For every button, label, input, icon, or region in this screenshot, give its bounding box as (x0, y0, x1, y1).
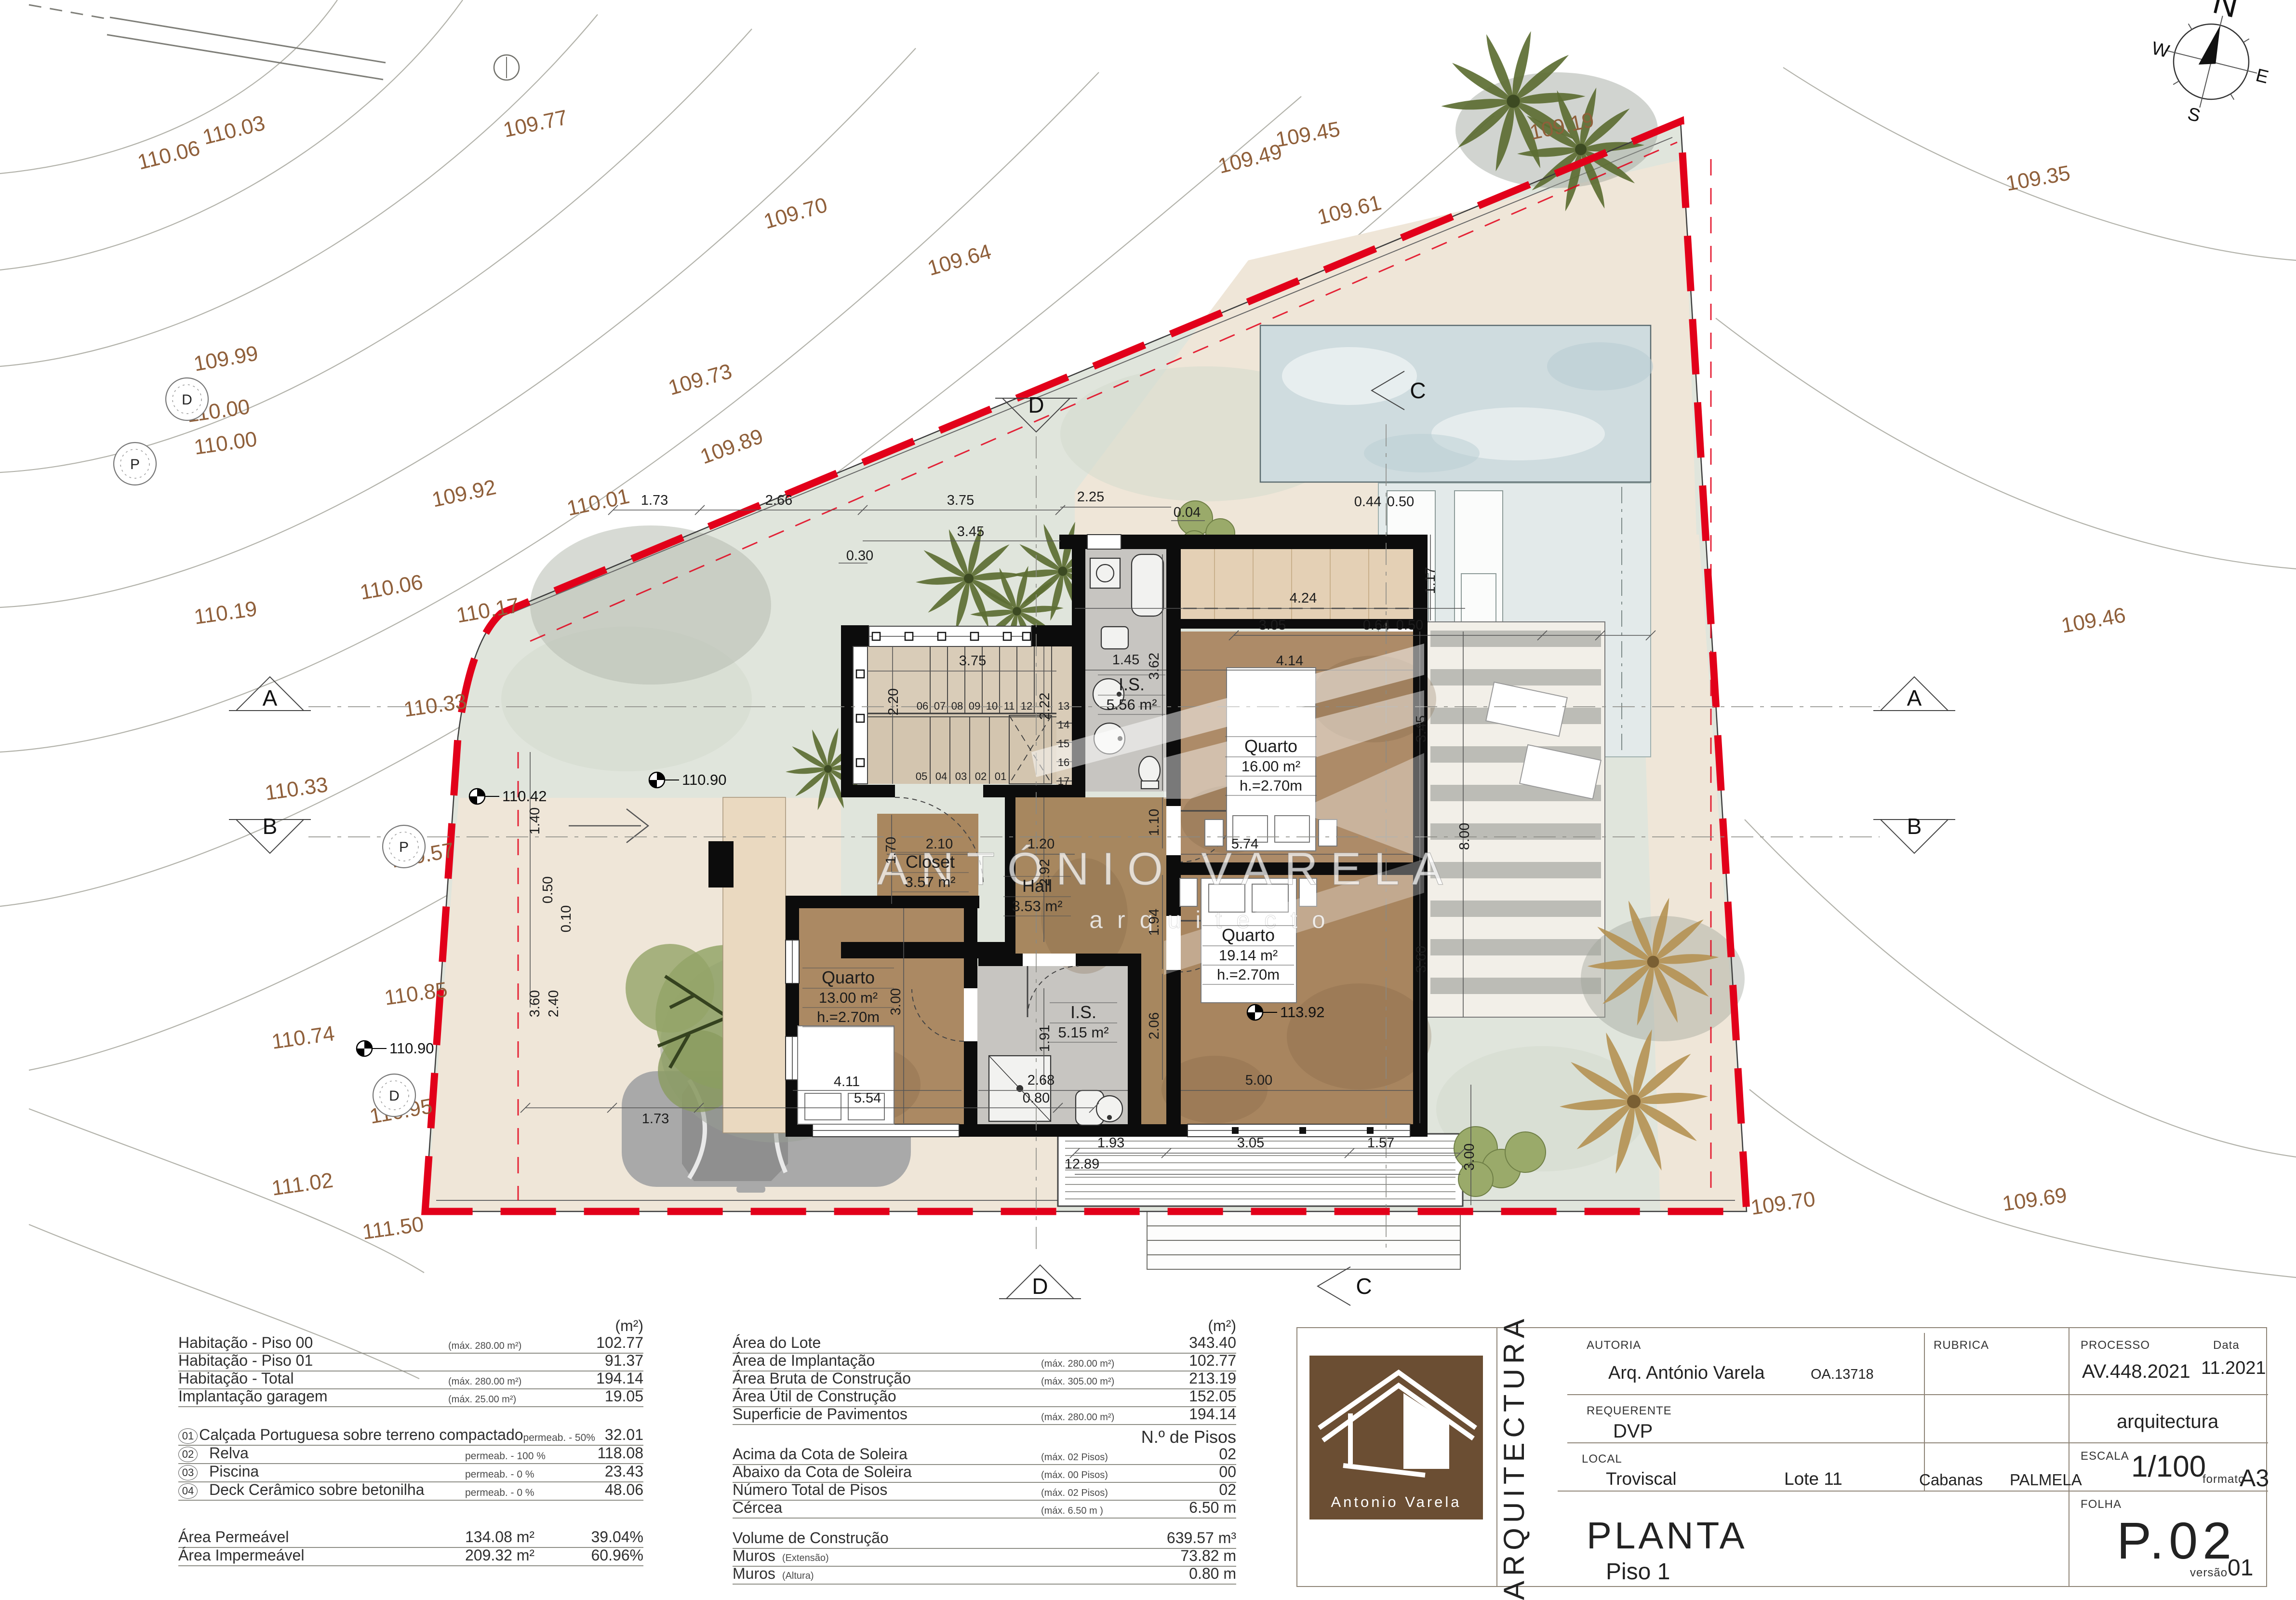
material-permeability: permeab. - 0 % (465, 1487, 586, 1499)
contour-elevation-label: 111.02 (270, 1169, 335, 1200)
areas-table-lote: (m²) Área do Lote343.40Área de Implantaç… (733, 1318, 1236, 1585)
spot-level-symbol (1247, 1005, 1263, 1020)
compass-needle (2199, 23, 2225, 69)
contour-elevation-label: 109.77 (501, 106, 570, 142)
folha-value: P.02 (2117, 1510, 2236, 1571)
pool (1260, 325, 1653, 482)
row-max: (máx. 305.00 m²) (1041, 1376, 1178, 1387)
dimension-label: 3.62 (1147, 653, 1162, 680)
row-value: 91.37 (586, 1352, 643, 1370)
spot-level-value: 110.90 (682, 771, 727, 788)
row-value: 639.57 m³ (1111, 1529, 1236, 1547)
dimension-label: 1.20 (1028, 836, 1055, 852)
dimension-label: 3.45 (957, 524, 984, 539)
row-label: Abaixo da Cota de Soleira (733, 1463, 1041, 1481)
stair-number: 09 (969, 700, 980, 712)
rubrica-label: RUBRICA (1934, 1339, 1989, 1352)
logo-house-icon (1309, 1356, 1483, 1481)
autoria-label: AUTORIA (1587, 1339, 1641, 1352)
versao-value: 01 (2228, 1555, 2253, 1581)
dimension-label: 1.73 (642, 1111, 669, 1127)
dimension-label: 1.91 (1037, 1025, 1053, 1052)
room-label: Closet (906, 852, 955, 872)
contour-elevation-label: 109.64 (925, 240, 994, 280)
dimension-label: 3.75 (959, 653, 986, 669)
contour-elevation-label: 109.61 (1315, 191, 1384, 229)
contour-elevation-label: 109.89 (697, 424, 766, 469)
drawing-sheet: { "colors":{"boundary_red":"#e2001a","co… (0, 0, 2296, 1597)
table-row: Habitação - Piso 0191.37 (178, 1354, 643, 1371)
contour-elevation-label: 110.33 (264, 773, 330, 805)
stair-number: 15 (1058, 738, 1069, 750)
dimension-label: 2.66 (765, 493, 792, 508)
section-marker-d: D (999, 1265, 1081, 1299)
room-label: 3.57 m² (905, 874, 955, 890)
entry-steps (1147, 1211, 1460, 1269)
row-value: 102.77 (1178, 1352, 1236, 1370)
dimension-label: 3.05 (1259, 618, 1286, 633)
contour-elevation-label: 110.00 (193, 427, 259, 459)
spot-level-value: 110.42 (502, 788, 547, 805)
survey-points: PDPD (114, 378, 425, 1116)
contour-elevation-label: 109.70 (761, 193, 830, 233)
total-row: Área Impermeável209.32 m²60.96% (178, 1548, 643, 1566)
processo-value: AV.448.2021 (2082, 1361, 2190, 1383)
section-marker-b: B (1873, 814, 1955, 853)
table-row: Habitação - Piso 00(máx. 280.00 m²)102.7… (178, 1336, 643, 1354)
row-label: Muros(Altura) (733, 1565, 1111, 1583)
section-marker-c: C (1318, 1267, 1372, 1305)
drawing-title: PLANTA (1587, 1514, 1748, 1558)
room-label: Quarto (1222, 925, 1275, 945)
contour-elevation-label: 110.03 (200, 111, 267, 149)
spot-level-symbol (649, 772, 665, 788)
stair-number: 14 (1058, 719, 1069, 731)
row-max: (máx. 00 Pisos) (1041, 1470, 1178, 1481)
material-row: 02Relvapermeab. - 100 %118.08 (178, 1446, 643, 1464)
room-label: I.S. (1119, 674, 1145, 694)
svg-text:B: B (263, 814, 278, 839)
room-label: 5.56 m² (1106, 696, 1157, 713)
dimension-label: 1.57 (1367, 1135, 1394, 1151)
pisos-header: N.º de Pisos (1141, 1427, 1236, 1447)
row-label: Área Útil de Construção (733, 1387, 1041, 1405)
table-row: Área de Implantação(máx. 280.00 m²)102.7… (733, 1354, 1236, 1371)
local-label: LOCAL (1582, 1452, 1622, 1466)
table-row: Superficie de Pavimentos(máx. 280.00 m²)… (733, 1407, 1236, 1425)
room-label: I.S. (1070, 1002, 1096, 1022)
dimension-label: 3.45 (1414, 715, 1429, 742)
row-label: Cércea (733, 1499, 1041, 1517)
spot-level-symbol (469, 789, 485, 804)
svg-text:A: A (1907, 686, 1922, 711)
dimension-label: 0.64 (1363, 618, 1390, 633)
pisos-row: Abaixo da Cota de Soleira(máx. 00 Pisos)… (733, 1465, 1236, 1483)
table-row: Área do Lote343.40 (733, 1336, 1236, 1354)
dimension-label: 4.24 (1290, 591, 1317, 606)
stair-number: 03 (955, 770, 967, 782)
table-row: Habitação - Total(máx. 280.00 m²)194.14 (178, 1371, 643, 1389)
stair-number: 07 (934, 700, 946, 712)
dimension-label: 0.80 (1023, 1090, 1050, 1106)
table-row: Implantação garagem(máx. 25.00 m²)19.05 (178, 1389, 643, 1407)
pergola-slat (1430, 978, 1601, 994)
svg-text:C: C (1410, 378, 1426, 403)
contour-elevation-label: 109.45 (1274, 117, 1342, 152)
material-value: 48.06 (586, 1481, 643, 1499)
dimension-label: 0.30 (846, 548, 873, 564)
total-label: Área Impermeável (178, 1546, 451, 1564)
total-label: Área Permeável (178, 1528, 451, 1546)
dimension-label: 0.50 (540, 876, 556, 903)
row-value: 02 (1178, 1481, 1236, 1499)
compass-west-label: W (2149, 38, 2171, 62)
row-value: 19.05 (586, 1387, 643, 1405)
material-value: 118.08 (586, 1444, 643, 1462)
row-value: 02 (1178, 1445, 1236, 1463)
table-row: Área Bruta de Construção(máx. 305.00 m²)… (733, 1371, 1236, 1389)
dimension-label: 2.20 (886, 688, 901, 715)
row-value: 0.80 m (1111, 1565, 1236, 1583)
material-label: Relva (209, 1444, 465, 1462)
contour-elevation-label: 110.01 (565, 484, 632, 521)
compass-north-label: N (2209, 0, 2242, 25)
dimension-label: 1.70 (883, 837, 899, 864)
versao-label: versão (2190, 1566, 2228, 1580)
dimension-label: 3.75 (947, 493, 974, 508)
survey-letter: P (399, 839, 409, 855)
autoria-number: OA.13718 (1811, 1367, 1874, 1383)
spot-level-value: 110.90 (389, 1040, 434, 1057)
row-value: 213.19 (1178, 1370, 1236, 1387)
road-lines (29, 5, 386, 80)
dimension-label: 1.94 (1147, 909, 1162, 936)
contour-elevation-label: 110.74 (270, 1022, 336, 1054)
dimension-label: 4.14 (1276, 653, 1303, 669)
room-label: 16.00 m² (1241, 758, 1300, 775)
discipline-vertical-label: ARQUITECTURA (1498, 1314, 1531, 1600)
dimension-label: 12.89 (1065, 1156, 1100, 1172)
material-permeability: permeab. - 50% (523, 1432, 605, 1444)
escala-value: 1/100 (2131, 1450, 2206, 1484)
room-label: h.=2.70m (817, 1008, 880, 1025)
contour-elevation-label: 109.69 (2001, 1183, 2069, 1216)
row-value: 343.40 (1178, 1334, 1236, 1352)
pisos-row: Acima da Cota de Soleira(máx. 02 Pisos)0… (733, 1447, 1236, 1465)
folha-label: FOLHA (2081, 1498, 2122, 1511)
total-value: 134.08 m² (451, 1528, 576, 1546)
dimension-label: 3.00 (1462, 1143, 1477, 1170)
material-number: 02 (178, 1447, 209, 1462)
processo-label: PROCESSO (2081, 1339, 2150, 1352)
row-max: (máx. 25.00 m²) (448, 1394, 586, 1405)
dimension-label: 1.40 (527, 807, 543, 834)
local-value-1: Troviscal (1606, 1469, 1677, 1489)
stair-number: 04 (935, 770, 947, 782)
svg-text:B: B (1907, 814, 1922, 839)
row-value: 73.82 m (1111, 1547, 1236, 1565)
row-label: Área do Lote (733, 1334, 1041, 1352)
row-label: Acima da Cota de Soleira (733, 1445, 1041, 1463)
dimension-label: 2.40 (546, 990, 561, 1017)
material-value: 23.43 (586, 1463, 643, 1480)
escala-label: ESCALA (2081, 1450, 2129, 1463)
material-row: 03Piscinapermeab. - 0 %23.43 (178, 1464, 643, 1482)
slat-deck (1427, 622, 1605, 1017)
svg-text:D: D (1032, 1274, 1048, 1299)
spot-level-value: 113.92 (1280, 1004, 1325, 1021)
dimension-label: 3.60 (527, 990, 543, 1017)
contour-elevation-label: 110.06 (135, 136, 202, 174)
dimension-label: 4.11 (834, 1074, 860, 1089)
pergola-slat (1430, 862, 1601, 878)
stair-number: 02 (975, 770, 987, 782)
material-permeability: permeab. - 0 % (465, 1469, 586, 1480)
pisos-row: Cércea(máx. 6.50 m )6.50 m (733, 1501, 1236, 1519)
pergola-slat (1430, 901, 1601, 917)
extra-row: Muros(Altura)0.80 m (733, 1567, 1236, 1585)
row-max: (máx. 02 Pisos) (1041, 1488, 1178, 1499)
dimension-label: 0.50 (1387, 494, 1414, 510)
extra-row: Volume de Construção639.57 m³ (733, 1531, 1236, 1549)
row-max: (máx. 280.00 m²) (448, 1376, 586, 1387)
room-label: Quarto (1244, 736, 1297, 756)
room-label: 3.53 m² (1012, 898, 1062, 914)
dimension-label: 0.50 (1396, 618, 1423, 633)
logo-name: Antonio Varela (1309, 1493, 1483, 1511)
contour-elevation-label: 109.70 (1749, 1187, 1817, 1220)
unit-header: (m²) (1208, 1317, 1236, 1335)
row-max: (máx. 280.00 m²) (1041, 1412, 1178, 1423)
data-label: Data (2213, 1339, 2240, 1352)
material-row: 01Calçada Portuguesa sobre terreno compa… (178, 1427, 643, 1446)
row-label: Área Bruta de Construção (733, 1370, 1041, 1387)
row-max: (máx. 6.50 m ) (1041, 1506, 1178, 1517)
material-value: 32.01 (604, 1426, 643, 1444)
survey-letter: D (182, 392, 192, 408)
contour-elevation-label: 109.73 (666, 359, 734, 400)
dimension-label: 8.00 (1457, 823, 1472, 850)
stair-number: 06 (917, 700, 928, 712)
total-row: Área Permeável134.08 m²39.04% (178, 1530, 643, 1548)
svg-text:A: A (263, 686, 278, 711)
dimension-label: 1.93 (1097, 1135, 1124, 1151)
contour-elevation-label: 109.35 (2004, 161, 2072, 196)
dimension-label: 2.25 (1077, 489, 1104, 505)
contour-elevation-label: 109.92 (430, 475, 498, 512)
material-number: 03 (178, 1465, 209, 1480)
requerente-label: REQUERENTE (1587, 1404, 1672, 1418)
stair-number: 08 (951, 700, 963, 712)
unit-header: (m²) (615, 1317, 643, 1335)
stair-number: 11 (1004, 700, 1015, 712)
row-value: 00 (1178, 1463, 1236, 1481)
section-marker-a: A (1873, 677, 1955, 711)
dimension-label: 5.74 (1231, 836, 1258, 852)
pisos-row: Número Total de Pisos(máx. 02 Pisos)02 (733, 1483, 1236, 1501)
row-value: 194.14 (1178, 1405, 1236, 1423)
row-value: 194.14 (586, 1370, 643, 1387)
room-label: Hall (1022, 876, 1052, 896)
local-value-4: PALMELA (2010, 1471, 2082, 1489)
material-label: Deck Cerâmico sobre betonilha (209, 1481, 465, 1499)
dimension-label: 3.05 (1237, 1135, 1264, 1151)
stair-number: 17 (1058, 775, 1069, 787)
row-label: Volume de Construção (733, 1529, 1111, 1547)
row-label: Muros(Extensão) (733, 1547, 1111, 1565)
contour-elevation-label: 109.46 (2059, 603, 2127, 638)
material-number: 04 (178, 1483, 209, 1499)
contour-elevation-label: 109.49 (1216, 140, 1284, 178)
formato-label: formato (2203, 1473, 2245, 1486)
extra-row: Muros(Extensão)73.82 m (733, 1549, 1236, 1567)
section-marker-b: B (229, 814, 311, 853)
svg-text:C: C (1356, 1274, 1372, 1299)
contour-elevation-label: 110.06 (358, 570, 425, 605)
total-percent: 60.96% (576, 1546, 643, 1564)
room-label: Quarto (822, 968, 875, 987)
contour-elevation-label: 110.19 (193, 597, 259, 629)
contour-elevation-label: 111.50 (361, 1212, 426, 1244)
dimension-label: 2.10 (926, 836, 953, 852)
dimension-label: 2.06 (1147, 1012, 1162, 1039)
room-label: 13.00 m² (819, 989, 878, 1006)
watermark-name: ANTÓNIO VARELA (877, 843, 1455, 895)
pergola-slat (1430, 669, 1601, 686)
row-label: Número Total de Pisos (733, 1481, 1041, 1499)
dimension-label: 1.45 (1112, 652, 1139, 668)
dimension-label: 1.73 (641, 493, 668, 508)
stair-number: 13 (1058, 700, 1069, 712)
dimension-label: 5.54 (854, 1090, 881, 1106)
row-label: Habitação - Total (178, 1370, 448, 1387)
specialty-value: arquitectura (2117, 1411, 2218, 1433)
compass-south-label: S (2186, 104, 2203, 126)
formato-value: A3 (2240, 1464, 2269, 1492)
dimension-label: 3.00 (888, 988, 904, 1015)
watermark-role: arquitecto (1089, 906, 1340, 933)
architect-logo: Antonio Varela (1309, 1356, 1483, 1519)
areas-table-habitacao: (m²) Habitação - Piso 00(máx. 280.00 m²)… (178, 1318, 643, 1566)
row-value: 152.05 (1178, 1387, 1236, 1405)
dimension-label: 2.68 (1028, 1073, 1055, 1088)
table-row: Área Útil de Construção152.05 (733, 1389, 1236, 1407)
survey-letter: D (389, 1088, 400, 1104)
row-label: Superficie de Pavimentos (733, 1405, 1041, 1423)
material-permeability: permeab. - 100 % (465, 1451, 586, 1462)
data-value: 11.2021 (2201, 1358, 2266, 1379)
dimension-label: 0.10 (559, 905, 574, 932)
room-label: 19.14 m² (1219, 947, 1278, 964)
spot-level-symbol (357, 1041, 372, 1056)
section-marker-a: A (229, 677, 311, 711)
dimension-label: 1.10 (1147, 809, 1162, 836)
contour-elevation-label: 109.99 (192, 341, 260, 376)
autoria-value: Arq. António Varela (1608, 1363, 1765, 1384)
material-label: Piscina (209, 1463, 465, 1480)
row-value: 102.77 (586, 1334, 643, 1352)
dimension-label: 1.17 (1423, 567, 1438, 594)
drawing-subtitle: Piso 1 (1606, 1559, 1670, 1585)
compass-east-label: E (2254, 65, 2270, 88)
total-percent: 39.04% (576, 1528, 643, 1546)
material-label: Calçada Portuguesa sobre terreno compact… (199, 1426, 523, 1444)
dimension-label: 0.04 (1174, 505, 1201, 520)
row-value: 6.50 m (1178, 1499, 1236, 1517)
pergola-slat (1430, 939, 1601, 955)
contour-elevation-label: 110.33 (402, 689, 468, 722)
row-max: (máx. 280.00 m²) (448, 1341, 586, 1352)
room-label: h.=2.70m (1217, 966, 1280, 983)
stair-number: 12 (1021, 700, 1032, 712)
stair-number: 16 (1058, 756, 1069, 768)
svg-text:D: D (1028, 392, 1044, 417)
row-label: Área de Implantação (733, 1352, 1041, 1370)
local-value-2: Lote 11 (1784, 1469, 1842, 1489)
material-number: 01 (178, 1428, 199, 1444)
material-row: 04Deck Cerâmico sobre betonilhapermeab. … (178, 1482, 643, 1501)
pergola-slat (1430, 631, 1601, 647)
row-label: Implantação garagem (178, 1387, 448, 1405)
total-value: 209.32 m² (451, 1546, 576, 1564)
title-block: Antonio Varela ARQUITECTURA AUTORIA Arq.… (1296, 1327, 2267, 1587)
stair-number: 01 (995, 770, 1006, 782)
row-label: Habitação - Piso 01 (178, 1352, 448, 1370)
row-max: (máx. 02 Pisos) (1041, 1452, 1178, 1463)
survey-letter: P (130, 457, 140, 472)
compass-rose: N W E S (2136, 0, 2288, 140)
row-label: Habitação - Piso 00 (178, 1334, 448, 1352)
dimension-label: 5.00 (1245, 1073, 1272, 1088)
stair-number: 05 (916, 770, 927, 782)
local-value-3: Cabanas (1919, 1471, 1983, 1489)
dimension-label: 3.60 (1414, 946, 1429, 973)
row-max: (máx. 280.00 m²) (1041, 1358, 1178, 1370)
dimension-label: 0.44 (1354, 494, 1381, 510)
requerente-value: DVP (1613, 1421, 1653, 1442)
stair-number: 10 (986, 700, 998, 712)
dimension-label: 2.22 (1037, 693, 1053, 720)
room-label: 5.15 m² (1058, 1024, 1108, 1041)
room-label: h.=2.70m (1240, 777, 1302, 794)
